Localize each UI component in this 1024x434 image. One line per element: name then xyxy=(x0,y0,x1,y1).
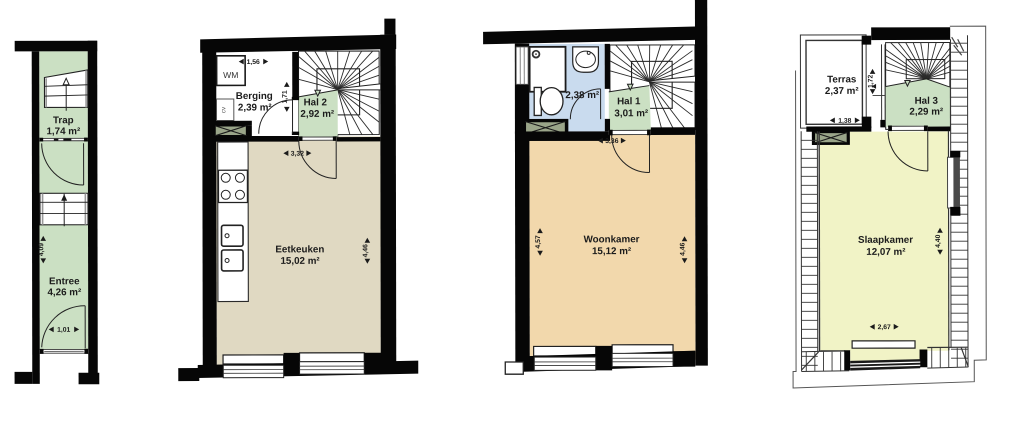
svg-text:4,09: 4,09 xyxy=(38,243,45,256)
svg-text:4,57: 4,57 xyxy=(535,235,542,248)
svg-text:12,07 m²: 12,07 m² xyxy=(866,247,906,258)
svg-text:Entree: Entree xyxy=(49,276,80,287)
svg-text:3,01 m²: 3,01 m² xyxy=(614,108,649,119)
svg-text:2,92 m²: 2,92 m² xyxy=(300,109,335,120)
svg-text:Eetkeuken: Eetkeuken xyxy=(275,244,324,255)
svg-text:3,36: 3,36 xyxy=(605,138,618,145)
svg-text:Woonkamer: Woonkamer xyxy=(584,234,640,245)
svg-text:cv: cv xyxy=(220,106,227,113)
svg-text:1,74 m²: 1,74 m² xyxy=(46,126,81,137)
svg-text:2,67: 2,67 xyxy=(878,324,891,331)
svg-text:4,26 m²: 4,26 m² xyxy=(47,287,82,298)
svg-text:15,12 m²: 15,12 m² xyxy=(592,246,632,257)
svg-text:2,38 m²: 2,38 m² xyxy=(565,90,600,101)
svg-text:2,29 m²: 2,29 m² xyxy=(909,107,944,118)
svg-text:Hal 1: Hal 1 xyxy=(617,96,641,107)
svg-text:4,46: 4,46 xyxy=(680,242,687,255)
svg-text:1,71: 1,71 xyxy=(282,90,289,103)
svg-text:Hal 3: Hal 3 xyxy=(915,96,939,107)
svg-text:2,39 m²: 2,39 m² xyxy=(238,102,273,113)
svg-text:1,01: 1,01 xyxy=(57,327,70,334)
svg-text:Berging: Berging xyxy=(236,91,273,102)
svg-text:Terras: Terras xyxy=(827,74,857,85)
svg-text:Trap: Trap xyxy=(53,115,74,126)
svg-text:3,32: 3,32 xyxy=(291,151,304,158)
svg-text:4,40: 4,40 xyxy=(935,234,942,247)
svg-text:Hal 2: Hal 2 xyxy=(304,97,328,108)
svg-text:4,46: 4,46 xyxy=(362,244,369,257)
svg-text:1,56: 1,56 xyxy=(247,59,260,66)
svg-text:Slaapkamer: Slaapkamer xyxy=(858,235,913,246)
svg-text:1,38: 1,38 xyxy=(838,118,851,125)
svg-text:2,37 m²: 2,37 m² xyxy=(825,86,860,97)
svg-text:15,02 m²: 15,02 m² xyxy=(280,256,320,267)
svg-text:WM: WM xyxy=(223,70,238,80)
